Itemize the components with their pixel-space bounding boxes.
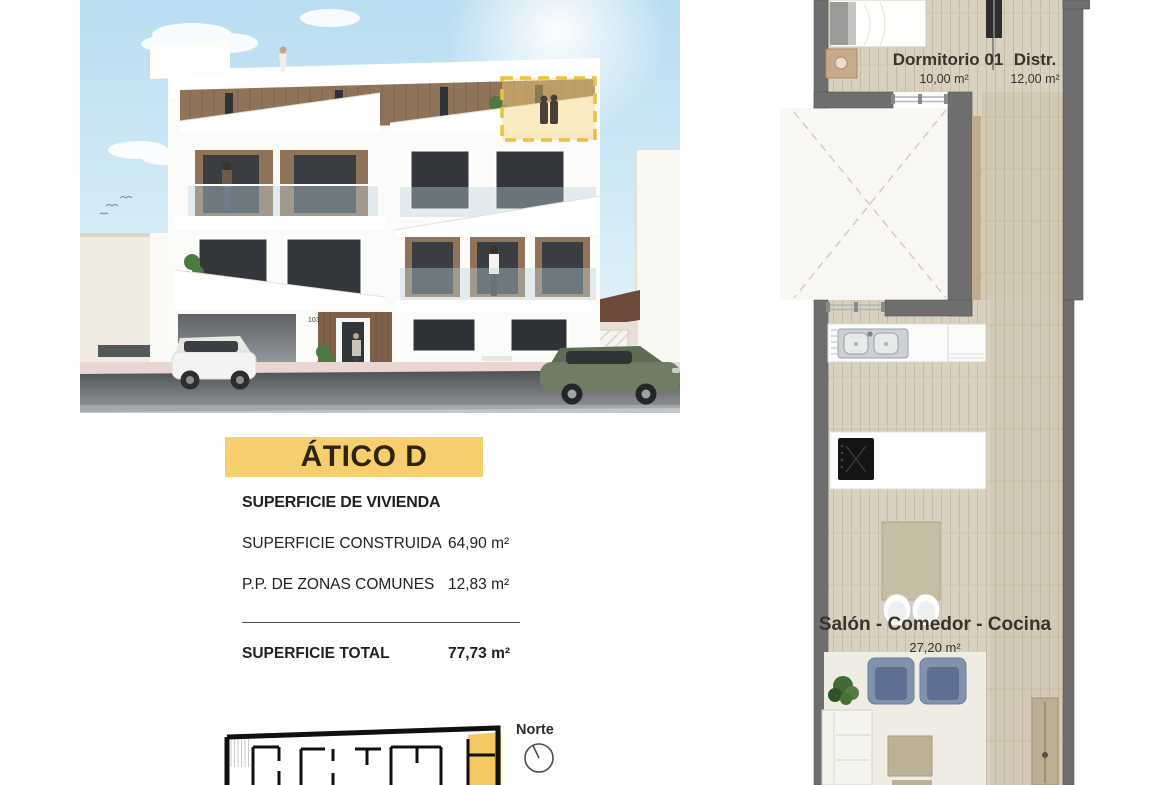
apartment-door: [1032, 698, 1058, 785]
coffee-table: [888, 736, 932, 776]
row-label: P.P. DE ZONAS COMUNES: [242, 576, 448, 594]
roof-stair-box: [150, 41, 230, 79]
compass-label: Norte: [516, 722, 554, 738]
appliance: [948, 324, 986, 362]
row-label: SUPERFICIE CONSTRUIDA: [242, 535, 448, 553]
room-area-distr: 12,00 m²: [1010, 72, 1059, 86]
table-divider: [242, 622, 520, 623]
table-row: P.P. DE ZONAS COMUNES 12,83 m²: [242, 576, 532, 594]
unit-banner: ÁTICO D: [225, 437, 483, 477]
room-label-distr: Distr.: [1014, 50, 1057, 70]
key-plan: [185, 719, 503, 785]
glass-door-bedroom: [891, 94, 948, 104]
total-value: 77,73 m²: [448, 645, 510, 663]
table-total-row: SUPERFICIE TOTAL 77,73 m²: [242, 645, 532, 663]
floor-plan: [780, 0, 1090, 785]
kitchen-counter: [828, 324, 956, 362]
terrace: [780, 108, 948, 300]
total-label: SUPERFICIE TOTAL: [242, 645, 448, 663]
kitchen-island: [830, 432, 986, 489]
sofa: [822, 710, 872, 785]
nightstand: [826, 49, 857, 78]
room-label-salon: Salón - Comedor - Cocina: [819, 614, 1051, 636]
room-area-dormitorio: 10,00 m²: [919, 72, 968, 86]
surface-table: SUPERFICIE DE VIVIENDA SUPERFICIE CONSTR…: [242, 494, 532, 663]
surface-table-header: SUPERFICIE DE VIVIENDA: [242, 494, 532, 512]
bed: [830, 0, 926, 47]
row-value: 12,83 m²: [448, 576, 509, 594]
armchair: [920, 658, 966, 704]
table-row: SUPERFICIE CONSTRUIDA 64,90 m²: [242, 535, 532, 553]
row-value: 64,90 m²: [448, 535, 509, 553]
armchair: [868, 658, 914, 704]
brochure-page: 103: [0, 0, 1170, 785]
building-render: 103: [80, 0, 680, 413]
corridor-paneling: [972, 116, 981, 300]
highlighted-unit-box: [502, 78, 595, 140]
dining-table: [882, 522, 940, 626]
coffee-table: [892, 780, 932, 785]
building-facade: 103: [150, 41, 600, 372]
living-area: [822, 652, 986, 785]
unit-title: ÁTICO D: [301, 440, 428, 474]
room-label-dormitorio: Dormitorio 01: [893, 50, 1004, 70]
compass-icon: [522, 741, 556, 775]
room-area-salon: 27,20 m²: [909, 640, 960, 655]
street-number: 103: [308, 317, 320, 324]
left-neighbor-wall: [80, 233, 175, 372]
